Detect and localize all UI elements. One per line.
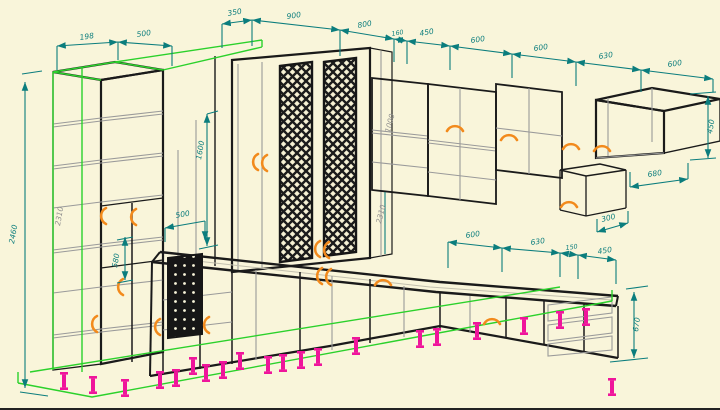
dimension-label: 450 [597, 245, 613, 256]
dimension-label: 600 [667, 58, 683, 69]
cabinet-foot [608, 378, 616, 396]
dimension-label: 900 [286, 10, 302, 21]
wall-cabinet-run [372, 78, 720, 216]
door-swing-icon [131, 209, 136, 225]
door-swing-icon [155, 319, 160, 335]
cabinet-foot [60, 372, 68, 390]
door-swing-icon [118, 279, 123, 295]
lattice-display-cabinet [232, 48, 392, 272]
door-swing-icon [447, 126, 463, 131]
tall-shelf-unit [53, 62, 163, 370]
dimension-label: 450 [419, 27, 435, 38]
cabinet-foot [121, 379, 129, 397]
door-swing-icon [561, 202, 577, 207]
adjustable-feet [60, 308, 616, 397]
dimension-label: 300 [600, 212, 616, 224]
dimension-label: 630 [598, 50, 614, 61]
corner-section [178, 56, 215, 266]
dimension-label: 350 [227, 7, 243, 18]
lattice-door [280, 62, 312, 262]
cad-drawing-canvas[interactable]: 198 500 350 900 800 160 450 600 600 630 … [0, 0, 720, 410]
shelf-lines [53, 111, 163, 338]
cabinet-foot [189, 357, 197, 375]
dimension-label: 2310 [374, 204, 387, 225]
dimension-label: 1000 [383, 113, 396, 134]
cabinet-foot [279, 354, 287, 372]
dimension-label: 670 [631, 317, 642, 333]
dimension-label: 630 [530, 236, 546, 247]
cabinet-foot [433, 328, 441, 346]
door-swing-icon [315, 241, 320, 257]
dimension-label: 198 [79, 31, 95, 42]
dimension-label: 680 [647, 168, 663, 179]
cabinet-wireframes [53, 48, 720, 376]
door-swing-icon [563, 144, 579, 149]
dimension-label: 600 [533, 42, 549, 53]
dimension-label: 500 [136, 28, 152, 39]
kitchen-cad-drawing: 198 500 350 900 800 160 450 600 600 630 … [0, 0, 720, 408]
dimension-label: 450 [705, 118, 716, 134]
dimension-label: 2310 [53, 206, 65, 227]
cabinet-foot [89, 376, 97, 394]
cabinet-foot [297, 351, 305, 369]
door-swing-icon [375, 280, 391, 285]
dimension-label: 2460 [7, 224, 19, 245]
dimension-label: 160 [391, 29, 404, 38]
door-swing-icon [253, 154, 258, 170]
door-swing-icon [262, 155, 267, 171]
cabinet-foot [314, 348, 322, 366]
cabinet-foot [416, 330, 424, 348]
dimension-label: 500 [175, 209, 191, 220]
door-swing-icon [101, 208, 106, 224]
door-swing-icon [501, 135, 517, 140]
dimension-label: 150 [565, 243, 578, 252]
cabinet-foot [520, 317, 528, 335]
selection-outline [18, 40, 612, 397]
dimension-label: 600 [470, 34, 486, 45]
dimension-label: 600 [465, 229, 481, 240]
dimension-label: 800 [357, 19, 373, 30]
lattice-door [324, 58, 356, 256]
wire-basket-front [168, 254, 202, 338]
dimension-label: 1600 [194, 140, 206, 161]
